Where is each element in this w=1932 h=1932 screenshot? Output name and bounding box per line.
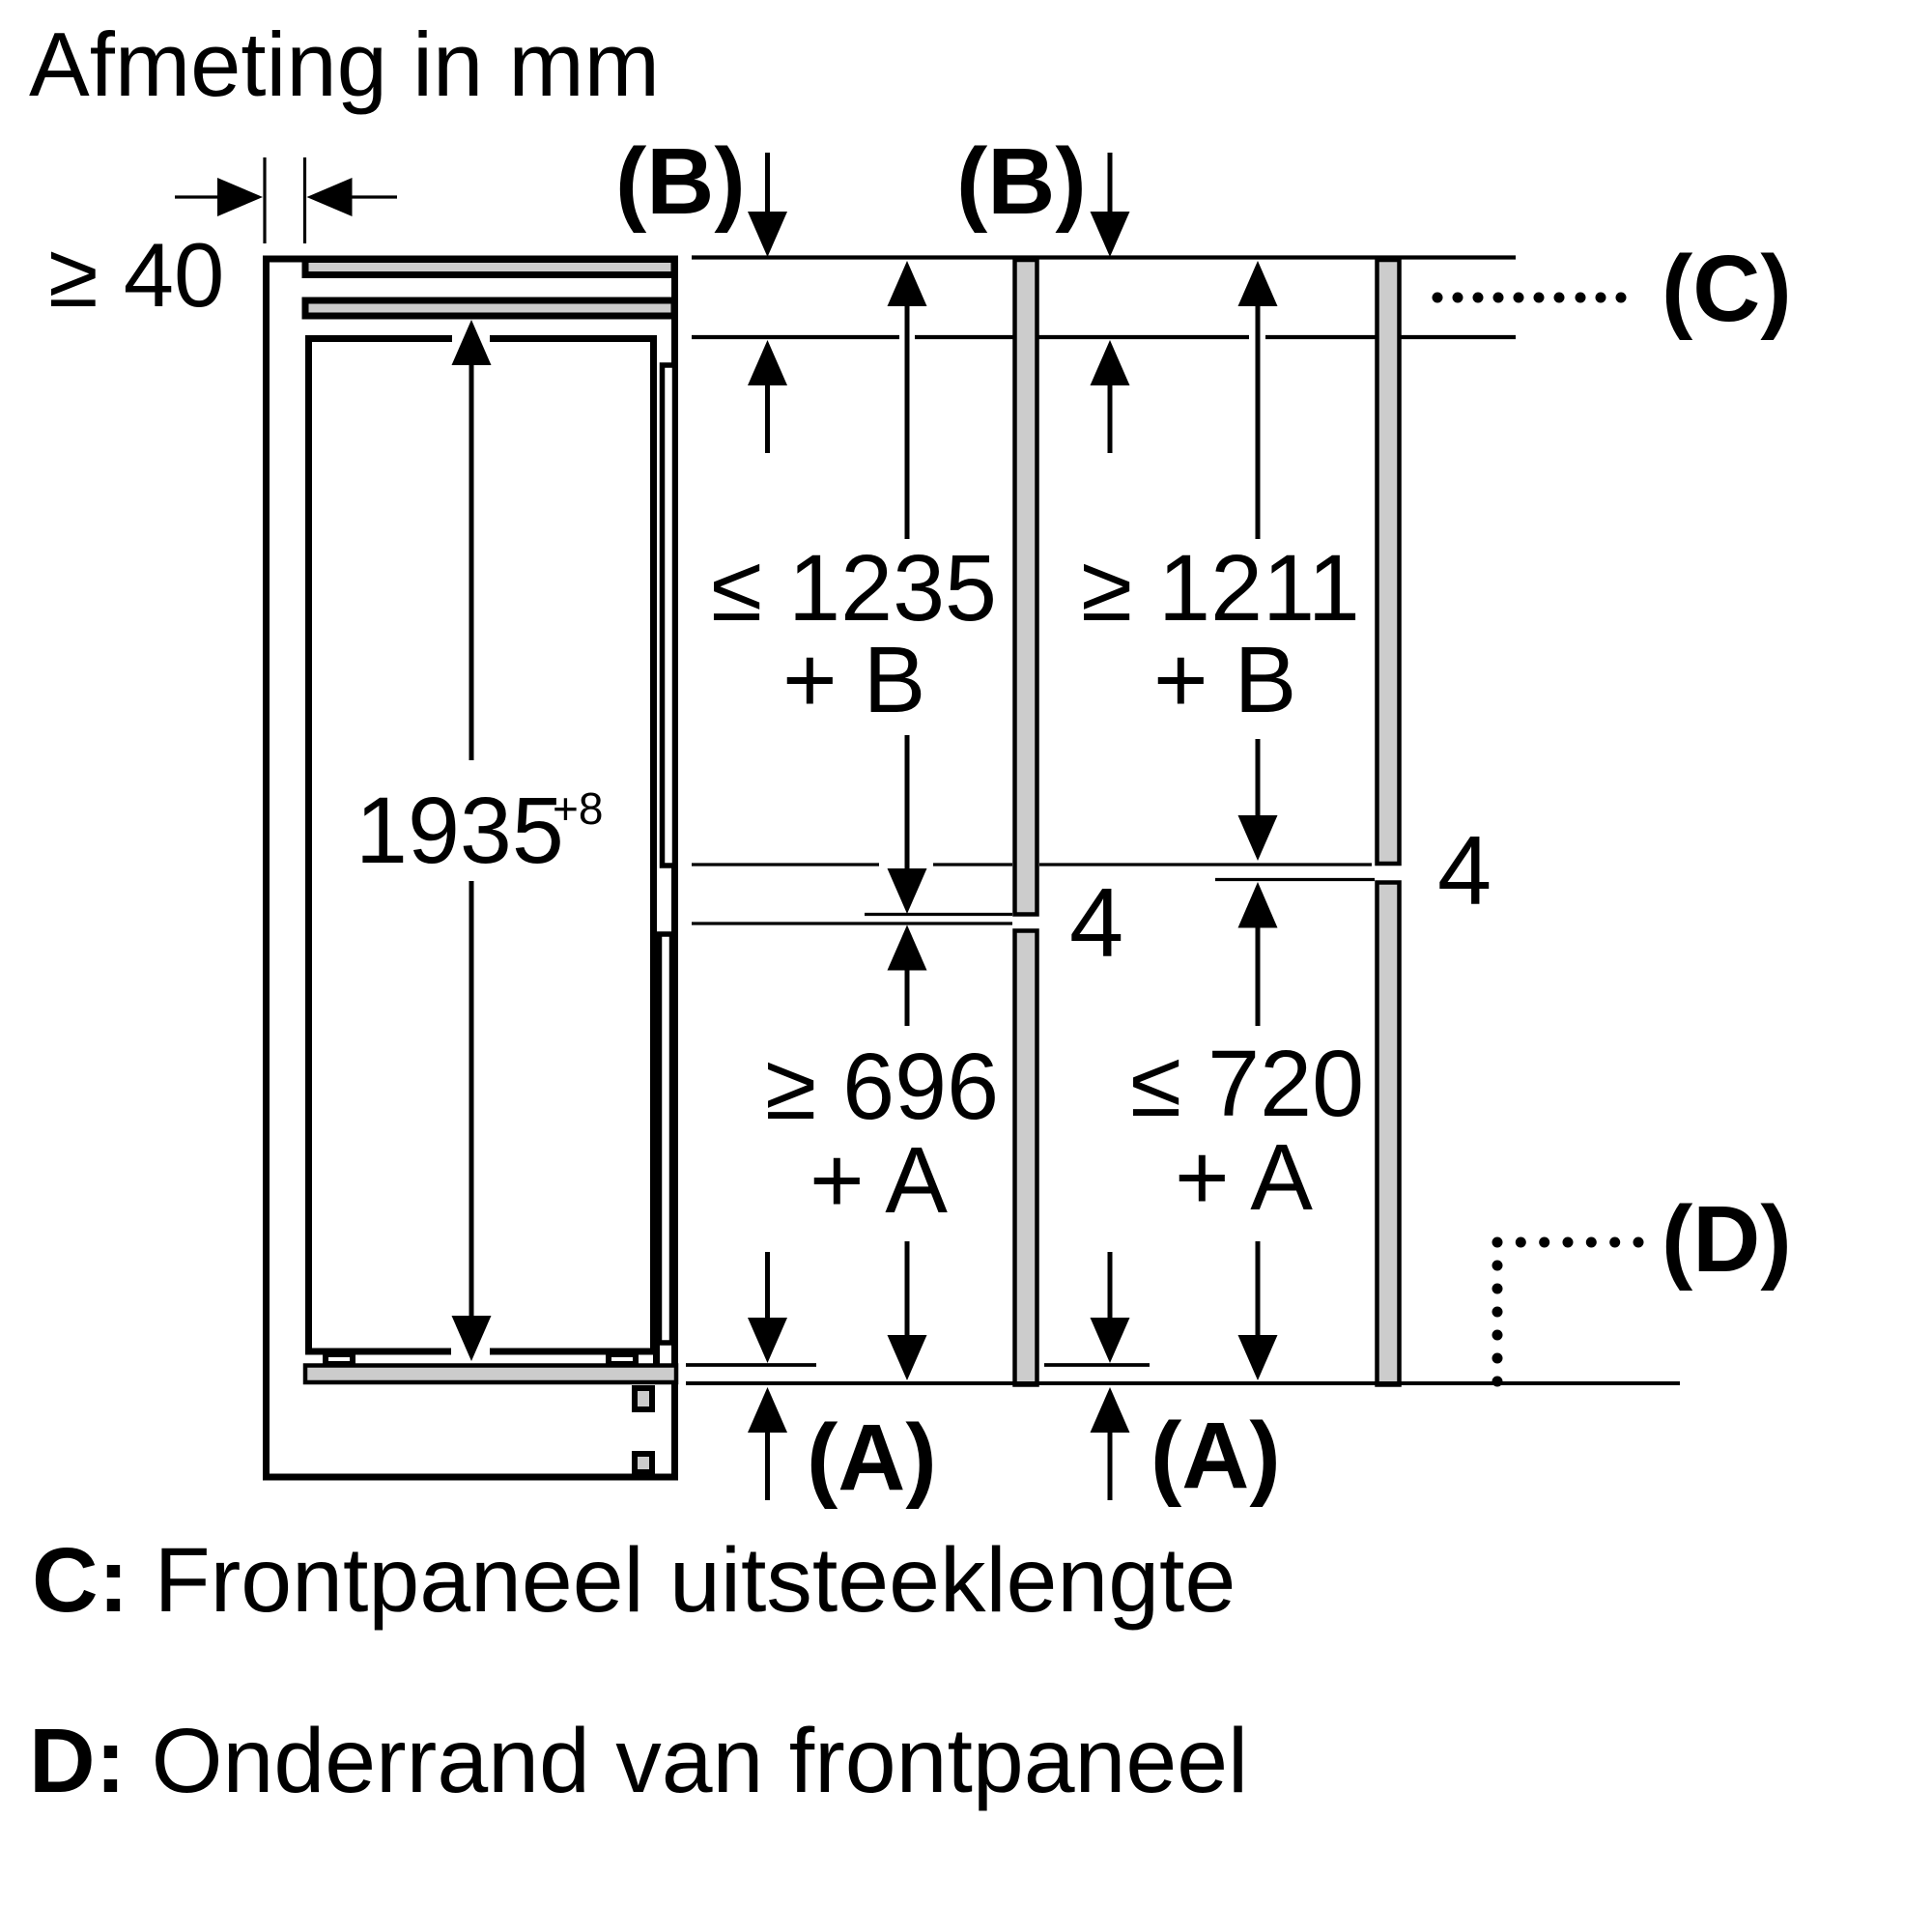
svg-text:≥ 1211: ≥ 1211 — [1081, 535, 1360, 640]
svg-text:≤ 720: ≤ 720 — [1130, 1031, 1364, 1136]
svg-text:+ A: + A — [1175, 1124, 1313, 1230]
svg-text:4: 4 — [1069, 869, 1123, 978]
svg-text:(D): (D) — [1662, 1186, 1792, 1292]
svg-text:4: 4 — [1437, 817, 1492, 925]
svg-text:(A): (A) — [807, 1405, 937, 1510]
svg-text:C: Frontpaneel uitsteeklengte: C: Frontpaneel uitsteeklengte — [32, 1529, 1236, 1632]
svg-text:+ B: + B — [782, 627, 925, 732]
svg-text:+8: +8 — [553, 783, 603, 834]
svg-text:Afmeting in mm: Afmeting in mm — [29, 14, 660, 115]
svg-text:≥ 40: ≥ 40 — [48, 224, 224, 326]
svg-text:D: Onderrand van frontpaneel: D: Onderrand van frontpaneel — [29, 1710, 1248, 1812]
svg-text:≤ 1235: ≤ 1235 — [711, 535, 997, 640]
svg-text:(B): (B) — [956, 128, 1087, 234]
svg-text:+ B: + B — [1153, 627, 1296, 732]
svg-text:(C): (C) — [1662, 236, 1792, 341]
svg-text:+ A: + A — [810, 1127, 948, 1233]
svg-text:(B): (B) — [615, 128, 746, 234]
svg-text:≥ 696: ≥ 696 — [765, 1034, 999, 1139]
svg-text:1935: 1935 — [355, 778, 564, 883]
svg-text:(A): (A) — [1151, 1403, 1281, 1508]
